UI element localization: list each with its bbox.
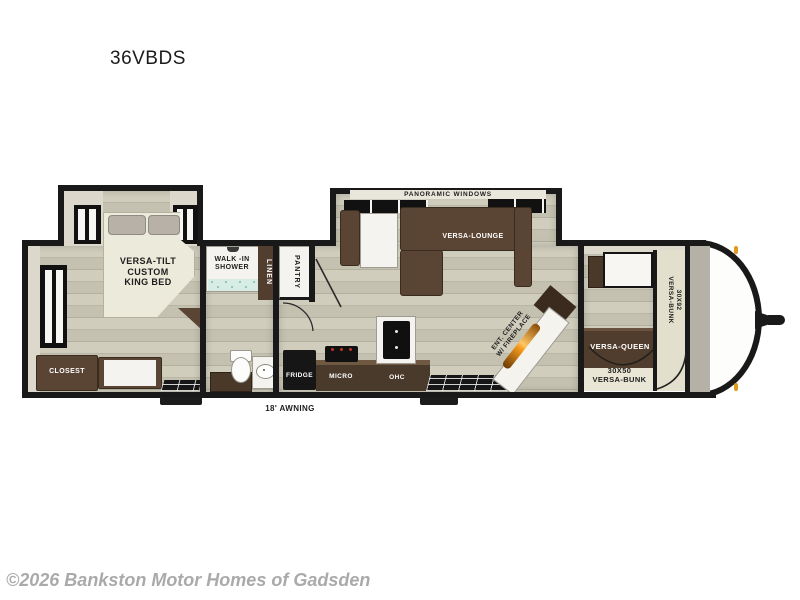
hitch-bar bbox=[768, 315, 785, 325]
dresser-top bbox=[104, 360, 156, 386]
wall bbox=[22, 240, 28, 398]
lounge-arm-right bbox=[514, 207, 532, 287]
copyright-watermark: ©2026 Bankston Motor Homes of Gadsden bbox=[6, 570, 370, 591]
marker-light-icon bbox=[734, 383, 738, 391]
front-cap-inner-wall bbox=[688, 246, 710, 392]
linen-label: LINEN bbox=[260, 245, 272, 299]
wall-pantry bbox=[309, 240, 315, 302]
entry-step bbox=[420, 397, 458, 405]
wall bbox=[22, 240, 64, 246]
bunk-large-label: 30X92 VERSA-BUNK bbox=[660, 270, 682, 330]
dinette-table bbox=[360, 213, 398, 268]
pillow bbox=[108, 215, 146, 235]
window-icon bbox=[40, 265, 67, 348]
pantry-label: PANTRY bbox=[288, 245, 300, 299]
pillow bbox=[148, 215, 180, 235]
model-title: 36VBDS bbox=[110, 48, 186, 70]
versa-lounge-label: VERSA-LOUNGE bbox=[430, 233, 516, 241]
bunk-small-label: 30X50 VERSA-BUNK bbox=[584, 367, 655, 385]
panoramic-windows-label: PANORAMIC WINDOWS bbox=[350, 191, 546, 199]
wall-bath-kitchen bbox=[273, 240, 279, 398]
wall bbox=[22, 392, 716, 398]
showerhead-icon bbox=[227, 247, 239, 252]
dinette-bench bbox=[340, 210, 360, 266]
shower-floor-tile bbox=[208, 279, 258, 291]
lounge-sofa bbox=[400, 207, 532, 251]
marker-light-icon bbox=[734, 246, 738, 254]
awning-label: 18' AWNING bbox=[250, 404, 330, 413]
versa-queen-label: VERSA-QUEEN bbox=[586, 343, 654, 352]
closet-label: CLOSEST bbox=[36, 368, 98, 376]
micro-label: MICRO bbox=[322, 373, 360, 381]
ohc-label: OHC bbox=[380, 374, 414, 382]
wall-living-frontbed bbox=[578, 240, 584, 398]
fridge-label: FRIDGE bbox=[283, 372, 316, 380]
entry-step bbox=[160, 397, 202, 405]
wall-bunk-cap bbox=[685, 246, 690, 392]
front-wardrobe bbox=[603, 252, 653, 288]
wall bbox=[197, 240, 336, 246]
cooktop-icon bbox=[325, 346, 358, 362]
bedroom-entry-mat bbox=[161, 380, 202, 391]
wall-bedroom-bath bbox=[200, 240, 206, 398]
wall-queen-bunk bbox=[653, 250, 657, 391]
cooktop-knobs bbox=[331, 348, 334, 351]
bath-sink-drain bbox=[263, 369, 265, 371]
window-icon bbox=[74, 205, 101, 244]
shower-label: WALK -IN SHOWER bbox=[205, 256, 259, 273]
toilet-bowl-icon bbox=[231, 357, 251, 383]
fridge bbox=[283, 350, 316, 390]
floorplan-page: 36VBDS PANORAMIC WINDOWS VERSA-TILT CUST… bbox=[0, 0, 800, 600]
kitchen-sink-drains bbox=[395, 330, 398, 333]
king-bed-label: VERSA-TILT CUSTOM KING BED bbox=[100, 256, 196, 288]
kitchen-sink-icon bbox=[383, 321, 410, 359]
lounge-chaise-left bbox=[400, 250, 443, 296]
